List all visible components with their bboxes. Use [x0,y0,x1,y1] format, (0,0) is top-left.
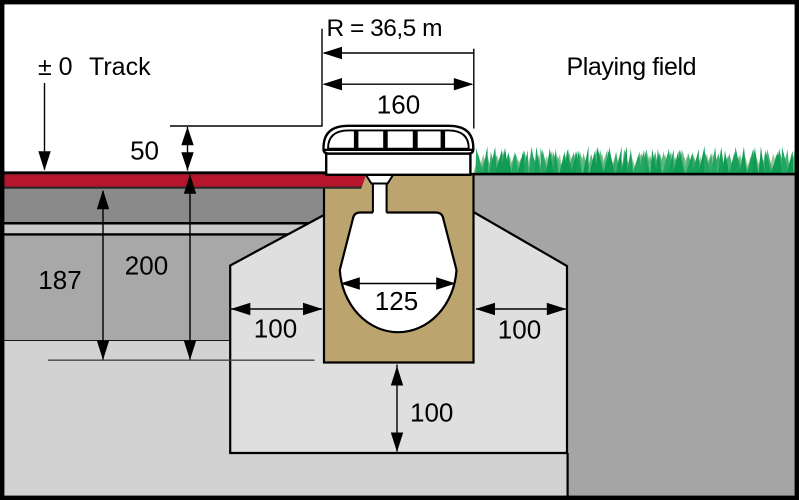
svg-text:Playing field: Playing field [567,53,697,81]
svg-text:187: 187 [38,265,81,295]
svg-text:100: 100 [410,398,453,428]
svg-text:R = 36,5 m: R = 36,5 m [327,15,443,42]
svg-text:50: 50 [130,136,159,166]
svg-text:100: 100 [254,314,297,344]
svg-text:100: 100 [498,315,541,345]
svg-text:125: 125 [375,286,418,316]
svg-text:160: 160 [377,90,420,120]
svg-text:± 0: ± 0 [38,53,73,81]
svg-text:Track: Track [89,53,151,81]
svg-text:200: 200 [125,251,168,281]
